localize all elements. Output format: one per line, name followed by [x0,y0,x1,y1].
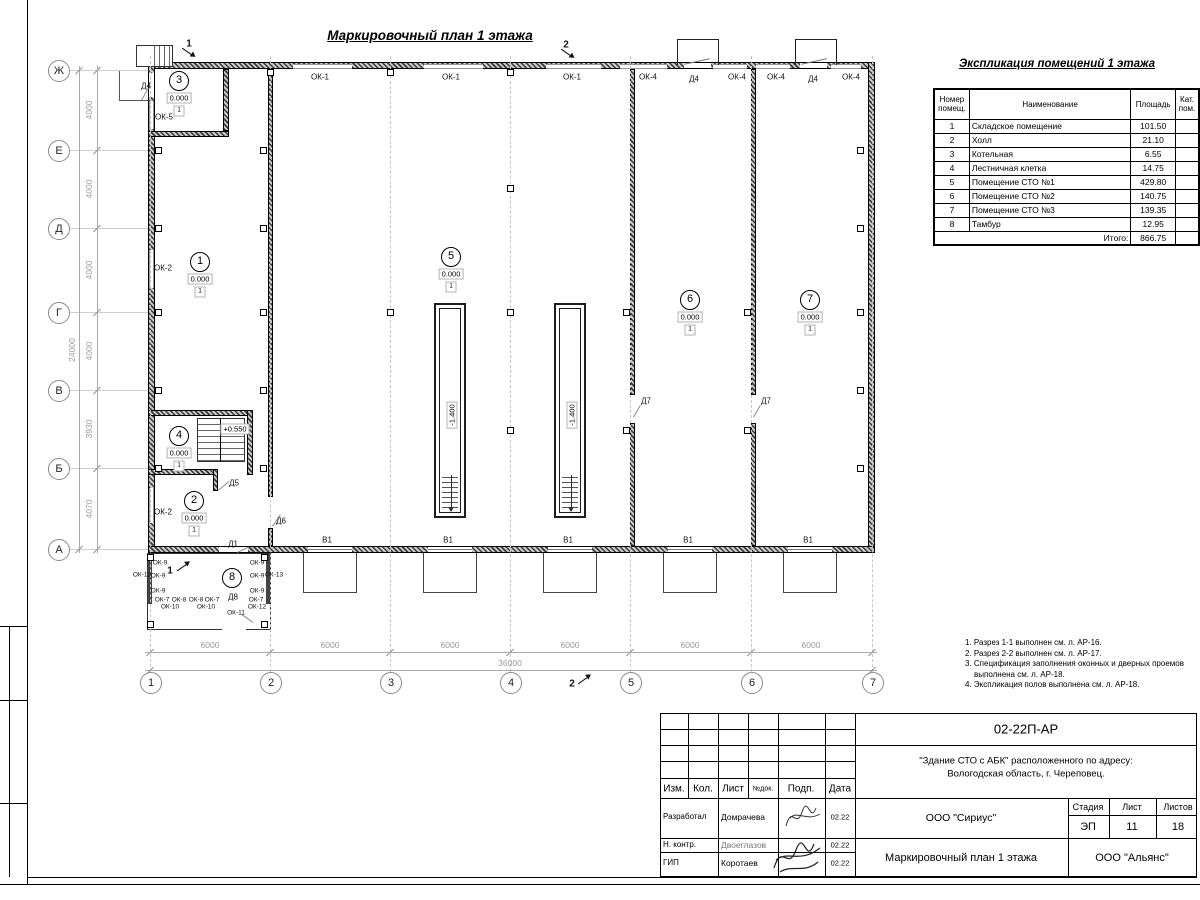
stair-elevation-label: +0.550 [220,424,249,435]
person-name: Двоеглазов [721,840,766,850]
person-name: Домрачева [721,812,765,822]
grid-line-col [150,56,151,672]
title-block-line [660,761,855,762]
column-pilaster [857,387,864,394]
column-pilaster [260,465,267,472]
column-pilaster [155,147,162,154]
gate-leaf [668,549,712,550]
elevation-label: 0.000 [678,312,703,323]
floor-type-mark: 1 [174,106,185,117]
room-marker: 4 [169,426,189,446]
axis-bubble-row: В [48,380,70,402]
gate-leaf [548,549,592,550]
explication-cell: Холл [969,133,1130,147]
boiler-wall [223,69,229,131]
explication-cell [1176,231,1199,245]
date-value: 02.22 [831,859,850,868]
window [756,64,790,69]
title-block-header: Изм. [663,784,684,795]
explication-cell: 8 [934,217,969,231]
dim-line [79,66,80,553]
doc-number: 02-22П-АР [994,722,1058,737]
explication-cell: 2 [934,133,969,147]
window [293,64,352,69]
axis-bubble-col: 5 [620,672,642,694]
wall-label: В1 [563,536,573,545]
title-block-header: Лист [722,784,744,795]
column-pilaster [507,427,514,434]
explication-row: 3Котельная6.55 [934,147,1199,161]
explication-cell: Помещение СТО №3 [969,203,1130,217]
note-line: 1. Разрез 1-1 выполнен см. л. АР-16. [965,638,1193,649]
column-pilaster [260,309,267,316]
explication-header: Площадь [1131,89,1176,119]
role-label: Разработал [663,812,707,821]
note-line: 3. Спецификация заполнения оконных и две… [965,659,1193,680]
wall-label: Д4 [141,82,151,91]
wall-label: ОК-13 [133,572,151,579]
column-pilaster [260,225,267,232]
grid-line-row [68,468,148,469]
dim-line [97,66,98,553]
title-block-line [660,729,855,730]
explication-cell: 14.75 [1131,161,1176,175]
dim-label: 6000 [441,640,460,650]
inspection-pit: -1.400 [554,303,586,518]
object-address-line2: Вологодская область, г. Череповец. [947,769,1104,780]
wall-label: Д1 [228,540,238,549]
floor-type-mark: 1 [195,287,206,298]
grid-line-col [872,56,873,672]
wall-label: ОК-9 [250,560,265,567]
explication-cell: 5 [934,175,969,189]
explication-header: Номер помещ. [934,89,969,119]
wall-label: В1 [803,536,813,545]
sheets-label: Листов [1163,802,1192,812]
room-marker: 6 [680,290,700,310]
grid-line-row [68,312,148,313]
dim-label: 6000 [201,640,220,650]
wall-label: ОК-7 [205,597,220,604]
explication-cell: Котельная [969,147,1130,161]
leader-line [218,481,229,491]
signature [770,838,826,876]
leader-line [633,405,641,418]
wall-label: ОК-9 [151,573,166,580]
dim-label: 4000 [84,180,94,199]
explication-cell: 140.75 [1131,189,1176,203]
explication-cell: 1 [934,119,969,133]
wall-label: ОК-8 [189,597,204,604]
column-pilaster [155,387,162,394]
boiler-wall [148,131,229,137]
column-pilaster [155,465,162,472]
sheet-label: Лист [1122,802,1142,812]
wall-label: Д8 [228,593,238,602]
wall-label: ОК-1 [563,73,581,82]
title-block-line [660,798,1197,799]
dim-label: 6000 [561,640,580,650]
dim-label-total: 36000 [498,658,522,668]
dim-line [145,652,877,653]
grid-line-row [68,228,148,229]
axis-bubble-row: Д [48,218,70,240]
explication-cell: 4 [934,161,969,175]
column-pilaster [623,309,630,316]
explication-cell: 7 [934,203,969,217]
pit-steps [442,477,458,511]
wall-label: Д5 [229,479,239,488]
room-marker: 3 [169,71,189,91]
role-label: Н. контр. [663,840,696,849]
explication-cell: Лестничная клетка [969,161,1130,175]
sheet-number: 11 [1126,821,1137,833]
explication-cell [1176,147,1199,161]
wall-label: В1 [683,536,693,545]
explication-row: 6Помещение СТО №2140.75 [934,189,1199,203]
explication-cell [1176,119,1199,133]
window [424,64,483,69]
explication-total-value: 866.75 [1131,231,1176,245]
stage-value: ЭП [1080,821,1096,833]
column-pilaster [507,69,514,76]
dim-label: 6000 [681,640,700,650]
dim-label: 4000 [84,342,94,361]
grid-line-row [68,390,148,391]
column-pilaster [155,225,162,232]
title-block-line [1068,815,1197,816]
pit-arrow [451,475,452,511]
wall-label: ОК-7 [249,597,264,604]
gate-leaf [428,549,472,550]
column-pilaster [267,69,274,76]
wall-label: 1 [186,39,192,50]
wall-label: ОК-1 [442,73,460,82]
dim-line [145,670,877,671]
explication-cell: 21.10 [1131,133,1176,147]
notes: 1. Разрез 1-1 выполнен см. л. АР-16.2. Р… [965,638,1193,691]
explication-row: 1Складское помещение101.50 [934,119,1199,133]
title-block-line [660,745,1197,746]
column-pilaster [857,465,864,472]
explication-cell: 6 [934,189,969,203]
contractor-name: ООО "Альянс" [1095,852,1169,864]
stair-wall [247,410,253,475]
axis-bubble-col: 3 [380,672,402,694]
drawing-title: Маркировочный план 1 этажа [885,852,1037,864]
elevation-label: 0.000 [167,93,192,104]
signature [782,800,824,834]
explication-cell: 101.50 [1131,119,1176,133]
company-name: ООО "Сириус" [926,812,996,824]
pit-elevation-label: -1.400 [447,401,458,428]
object-address-line1: "Здание СТО с АБК" расположенного по адр… [919,756,1132,767]
sheets-total: 18 [1172,821,1184,833]
wall-label: Д4 [689,75,699,84]
column-pilaster [507,309,514,316]
wall-label: ОК-4 [842,73,860,82]
axis-bubble-row: Ж [48,60,70,82]
pit-steps [562,477,578,511]
title-block-line [1156,798,1157,838]
explication-cell: 12.95 [1131,217,1176,231]
grid-line-col [630,56,631,672]
axis-bubble-col: 7 [862,672,884,694]
title-block-line [660,838,1197,839]
gate-leaf [308,549,352,550]
gate-apron [423,553,477,593]
explication-cell: 6.55 [1131,147,1176,161]
column-pilaster [744,309,751,316]
date-value: 02.22 [831,841,850,850]
grid-line-col [390,56,391,672]
column-pilaster [857,225,864,232]
dim-label: 6000 [802,640,821,650]
role-label: ГИП [663,858,679,867]
wall-label: ОК-9 [250,573,265,580]
title-block-line [688,713,689,798]
wall-label: В1 [443,536,453,545]
axis-bubble-col: 4 [500,672,522,694]
room-marker: 7 [800,290,820,310]
leader-line [753,405,761,418]
wall-label: ОК-7 [155,597,170,604]
dim-label: 6000 [321,640,340,650]
gate-apron [303,553,357,593]
wall-label: ОК-8 [172,597,187,604]
section-arrow [578,677,588,685]
wall-label: 1 [167,566,173,577]
explication-cell [1176,203,1199,217]
column-pilaster [623,427,630,434]
room-marker: 8 [222,568,242,588]
title-block-line [855,713,856,877]
floor-type-mark: 1 [805,325,816,336]
wall-bottom [148,546,875,553]
explication-cell [1176,133,1199,147]
stair-wall [213,469,218,491]
column-pilaster [155,309,162,316]
column-pilaster [507,185,514,192]
room-marker: 2 [184,491,204,511]
window [620,64,667,69]
explication-cell [1176,217,1199,231]
explication-table: Номер помещ.НаименованиеПлощадьКат. пом.… [933,88,1200,246]
person-name: Коротаев [721,858,758,868]
inspection-pit: -1.400 [434,303,466,518]
wall-label: ОК-12 [248,604,266,611]
elevation-label: 0.000 [798,312,823,323]
wall-label: ОК-2 [154,264,172,273]
column-pilaster [147,621,154,628]
floor-type-mark: 1 [685,325,696,336]
explication-cell: 429.80 [1131,175,1176,189]
dim-label: 4070 [84,500,94,519]
title-block-header: №док. [753,786,774,793]
wall-label: Д6 [276,517,286,526]
explication-row: 5Помещение СТО №1429.80 [934,175,1199,189]
note-line: 2. Разрез 2-2 выполнен см. л. АР-17. [965,649,1193,660]
grid-line-row [68,150,148,151]
wall-label: Д4 [808,75,818,84]
exterior-stair [136,45,173,67]
column-pilaster [260,387,267,394]
explication-title: Экспликация помещений 1 этажа [959,58,1155,70]
wall-label: Д7 [641,397,651,406]
wall-label: ОК-10 [197,604,215,611]
gate-leaf [788,549,832,550]
elevation-label: 0.000 [167,448,192,459]
wall-label: Д7 [761,397,771,406]
elevation-label: 0.000 [182,513,207,524]
gate-apron [543,553,597,593]
floor-type-mark: 1 [189,526,200,537]
grid-line-col [270,56,271,672]
room-marker: 1 [190,252,210,272]
floor-type-mark: 1 [446,282,457,293]
axis-bubble-col: 1 [140,672,162,694]
axis-bubble-col: 2 [260,672,282,694]
explication-row: 4Лестничная клетка14.75 [934,161,1199,175]
dim-label: 3930 [84,420,94,439]
explication-total-label: Итого: [934,231,1131,245]
room-marker: 5 [441,247,461,267]
explication-cell: 3 [934,147,969,161]
elevation-label: 0.000 [439,269,464,280]
explication-cell: Тамбур [969,217,1130,231]
wall-label: ОК-9 [153,560,168,567]
axis-bubble-row: А [48,539,70,561]
stage-label: Стадия [1073,802,1104,812]
explication-row: 7Помещение СТО №3139.35 [934,203,1199,217]
wall-label: 2 [563,40,569,51]
wall-label: ОК-1 [311,73,329,82]
gate-apron [783,553,837,593]
drawing-sheet: Маркировочный план 1 этажа [0,0,1200,900]
wall-label: ОК-9 [250,588,265,595]
dim-label-total: 24000 [67,338,77,362]
window [546,64,601,69]
explication-cell: Помещение СТО №2 [969,189,1130,203]
gate-apron [663,553,717,593]
pit-arrow [571,475,572,511]
explication-cell: 139.35 [1131,203,1176,217]
column-pilaster [387,69,394,76]
pit-elevation-label: -1.400 [567,401,578,428]
dim-label: 4000 [84,101,94,120]
explication-cell [1176,189,1199,203]
explication-cell: Складское помещение [969,119,1130,133]
explication-row: 2Холл21.10 [934,133,1199,147]
wall-label: ОК-4 [728,73,746,82]
explication-cell: Помещение СТО №1 [969,175,1130,189]
title-block-line [748,713,749,798]
column-pilaster [744,427,751,434]
explication-cell [1176,175,1199,189]
axis-bubble-row: Б [48,458,70,480]
axis-bubble-row: Е [48,140,70,162]
wall-label: 2 [569,679,575,690]
wall-label: В1 [322,536,332,545]
column-pilaster [857,147,864,154]
wall-label: ОК-11 [227,610,245,617]
stair-wall [148,410,253,416]
door-opening [222,627,246,631]
wall-label: ОК-2 [154,508,172,517]
column-pilaster [387,309,394,316]
column-pilaster [261,621,268,628]
explication-cell [1176,161,1199,175]
wall-label: ОК-9 [151,588,166,595]
title-block-header: Дата [829,784,851,795]
title-block-header: Кол. [693,784,713,795]
explication-grid: Номер помещ.НаименованиеПлощадьКат. пом.… [933,88,1200,246]
floor-type-mark: 1 [174,461,185,472]
dim-label: 4000 [84,261,94,280]
wall-label: ОК-5 [155,113,173,122]
column-pilaster [260,147,267,154]
title-block-line [1109,798,1110,838]
elevation-label: 0.000 [188,274,213,285]
explication-header: Наименование [969,89,1130,119]
explication-header: Кат. пом. [1176,89,1199,119]
note-line: 4. Экспликация полов выполнена см. л. АР… [965,680,1193,691]
column-pilaster [857,309,864,316]
wall-label: ОК-10 [161,604,179,611]
wall-label: ОК-13 [265,572,283,579]
axis-bubble-col: 6 [741,672,763,694]
explication-row: 8Тамбур12.95 [934,217,1199,231]
grid-line-col [751,56,752,672]
grid-line-col [510,56,511,672]
date-value: 02.22 [831,813,850,822]
wall-label: ОК-4 [767,73,785,82]
axis-bubble-row: Г [48,302,70,324]
title-block-line [660,778,855,779]
title-block-header: Подп. [788,784,815,795]
wall-label: ОК-4 [639,73,657,82]
